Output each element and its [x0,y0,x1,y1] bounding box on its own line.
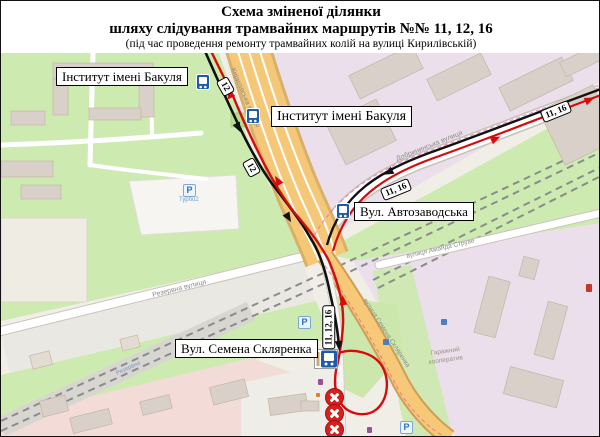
parking-icon-turbo: P [183,184,196,197]
info-poi-icon-2 [441,319,447,325]
closed-track-marker-3 [325,420,344,437]
clinic-poi-icon [586,284,592,292]
stop-label-sklyarenka: Вул. Семена Скляренка [175,339,318,358]
scheme-header: Схема зміненої ділянки шляху слідування … [1,1,600,53]
parking-icon-terminus: P [298,316,311,329]
subtitle: (під час проведення ремонту трамвайних к… [1,38,600,51]
parking-caption: Турбо2 [179,197,199,203]
stop-label-avtozavodska: Вул. Автозаводська [354,202,474,221]
stop-label-bakulya-west: Інститут імені Бакуля [56,67,188,86]
title-line-1: Схема зміненої ділянки [1,4,600,21]
badge-route-11-12-16-terminus: 11, 12, 16 [322,306,335,350]
stop-label-bakulya-east: Інститут імені Бакуля [271,106,412,127]
cafe-poi-icon [316,393,320,397]
shop-poi-icon-2 [367,427,372,433]
parking-icon-garage: P [400,421,413,434]
info-poi-icon-1 [383,339,389,345]
shop-poi-icon-1 [318,379,323,385]
scheme-page: Схема зміненої ділянки шляху слідування … [0,0,600,437]
route-map: Кирилівська вулиця Добрининська вулиця в… [1,53,600,437]
title-line-2: шляху слідування трамвайних маршрутів №№… [1,21,600,38]
